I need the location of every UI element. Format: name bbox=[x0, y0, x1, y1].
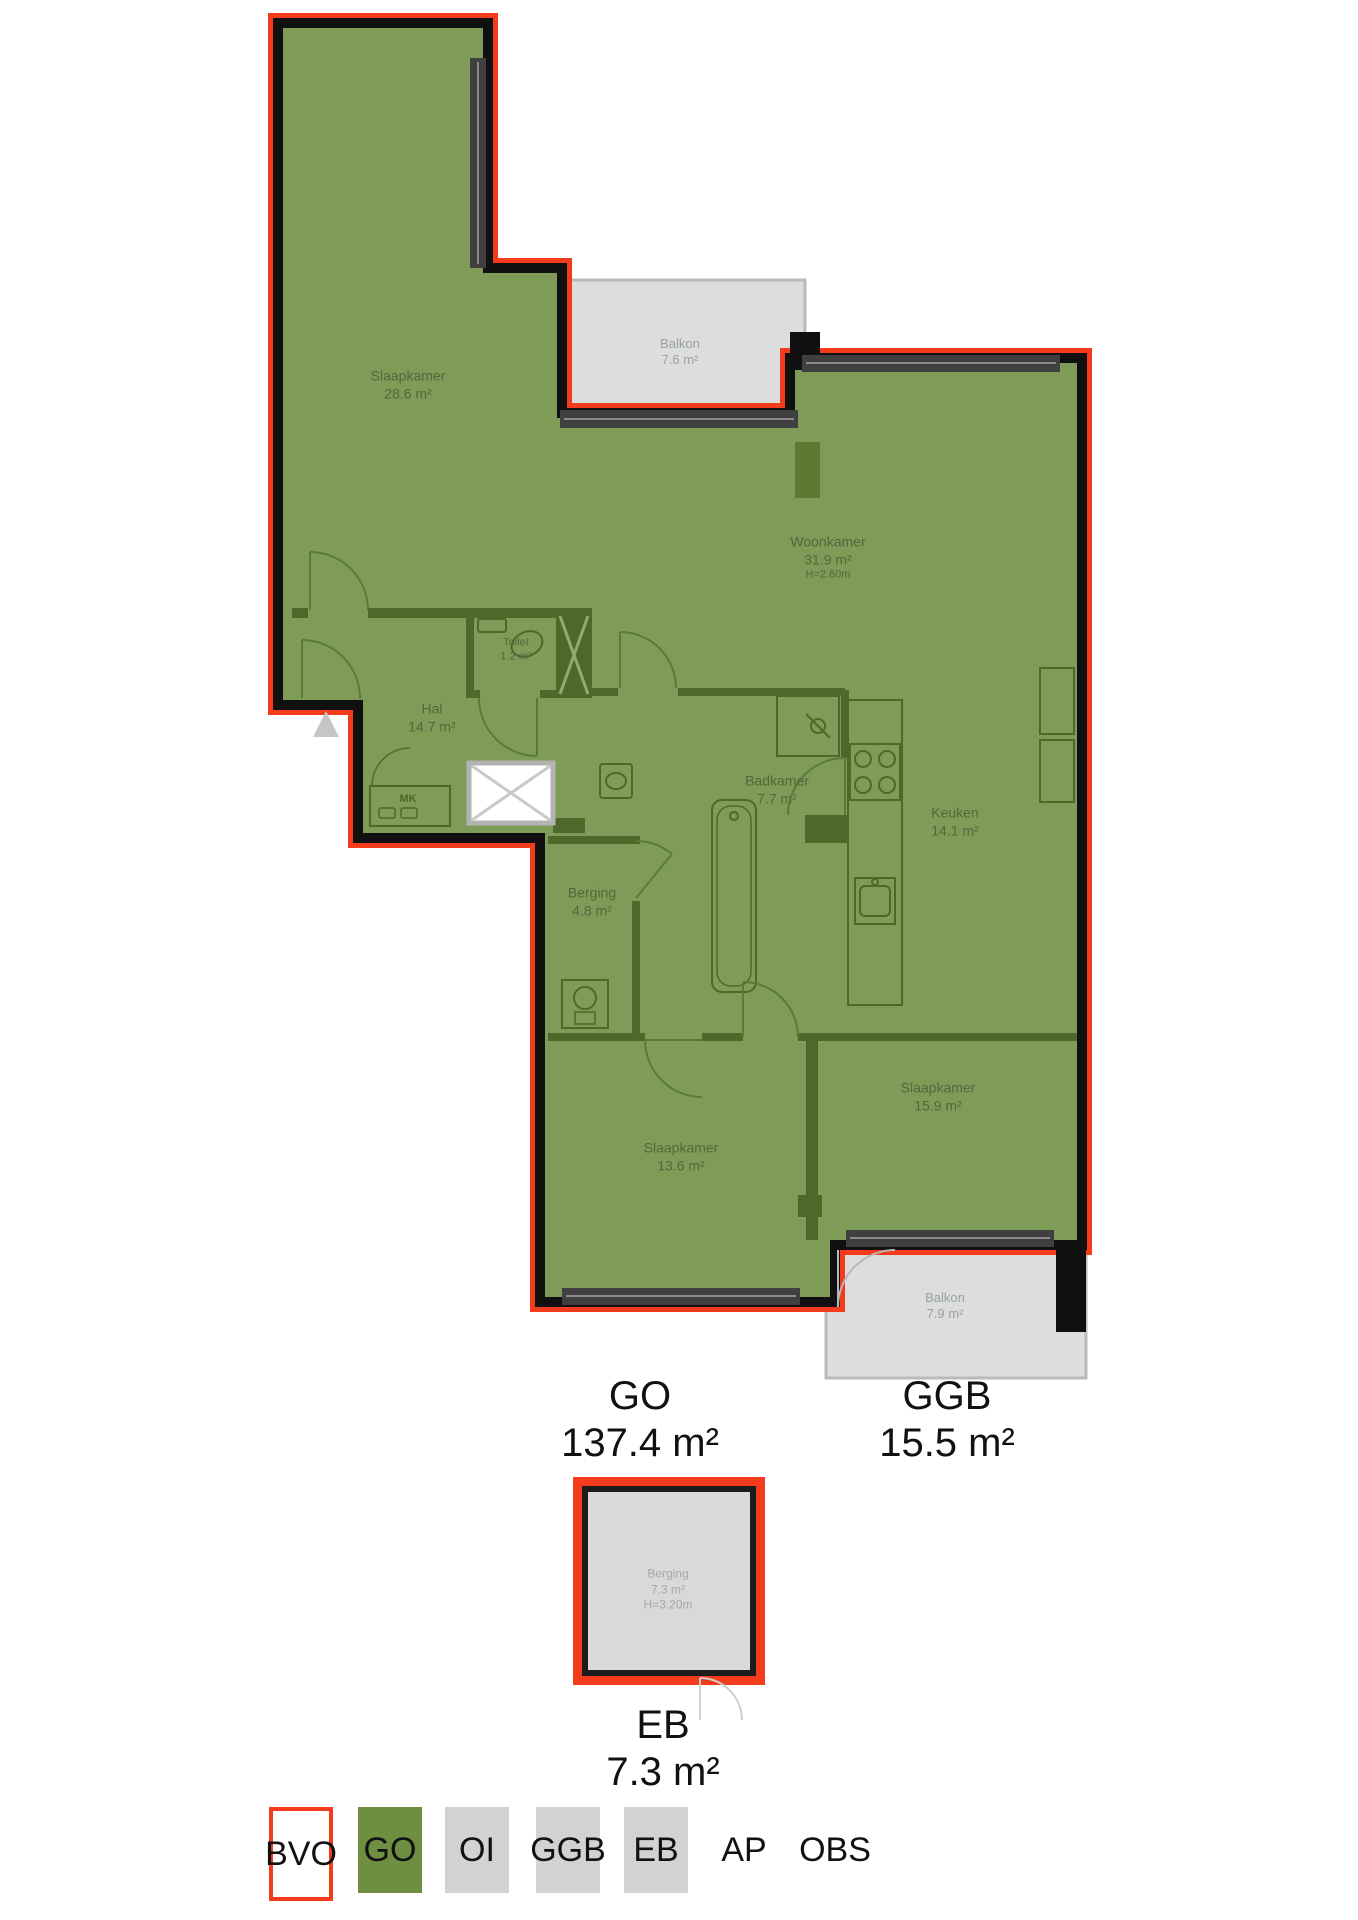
legend-item-oi: OI bbox=[445, 1807, 509, 1893]
floorplan-canvas bbox=[0, 0, 1358, 1920]
floorplan-page: Slaapkamer28.6 m² Balkon7.6 m² Woonkamer… bbox=[0, 0, 1358, 1920]
apartment-outline bbox=[283, 28, 1086, 1332]
legend-item-obs: OBS bbox=[795, 1807, 875, 1893]
legend-item-eb: EB bbox=[624, 1807, 688, 1893]
legend-item-go: GO bbox=[358, 1807, 422, 1893]
external-storage-box bbox=[578, 1482, 760, 1720]
legend-item-bvo: BVO bbox=[269, 1807, 333, 1901]
balcony-top-area bbox=[556, 280, 805, 420]
balcony-bottom-area bbox=[826, 1244, 1086, 1378]
legend-item-ggb: GGB bbox=[536, 1807, 600, 1893]
legend-item-ap: AP bbox=[712, 1807, 776, 1893]
elevator-shaft bbox=[469, 763, 553, 823]
